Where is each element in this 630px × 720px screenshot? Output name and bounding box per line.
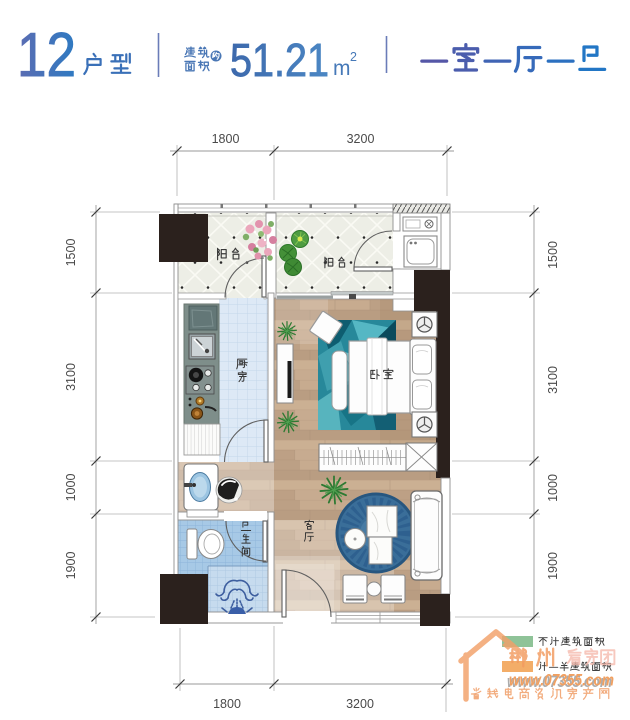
svg-text:1500: 1500 — [64, 239, 78, 267]
svg-text:www.07355.com: www.07355.com — [509, 671, 614, 690]
svg-text:1900: 1900 — [64, 552, 78, 580]
svg-text:51.21: 51.21 — [230, 34, 329, 86]
svg-text:1000: 1000 — [64, 474, 78, 502]
svg-text:3200: 3200 — [346, 697, 374, 711]
svg-text:1800: 1800 — [212, 132, 240, 146]
svg-text:3100: 3100 — [546, 366, 560, 394]
svg-text:1900: 1900 — [546, 552, 560, 580]
svg-text:1000: 1000 — [546, 474, 560, 502]
svg-text:3200: 3200 — [347, 132, 375, 146]
svg-text:3100: 3100 — [64, 363, 78, 391]
svg-text:12: 12 — [17, 21, 76, 90]
svg-text:2: 2 — [350, 50, 357, 64]
svg-text:1500: 1500 — [546, 241, 560, 269]
svg-text:m: m — [333, 57, 351, 80]
svg-text:1800: 1800 — [213, 697, 241, 711]
